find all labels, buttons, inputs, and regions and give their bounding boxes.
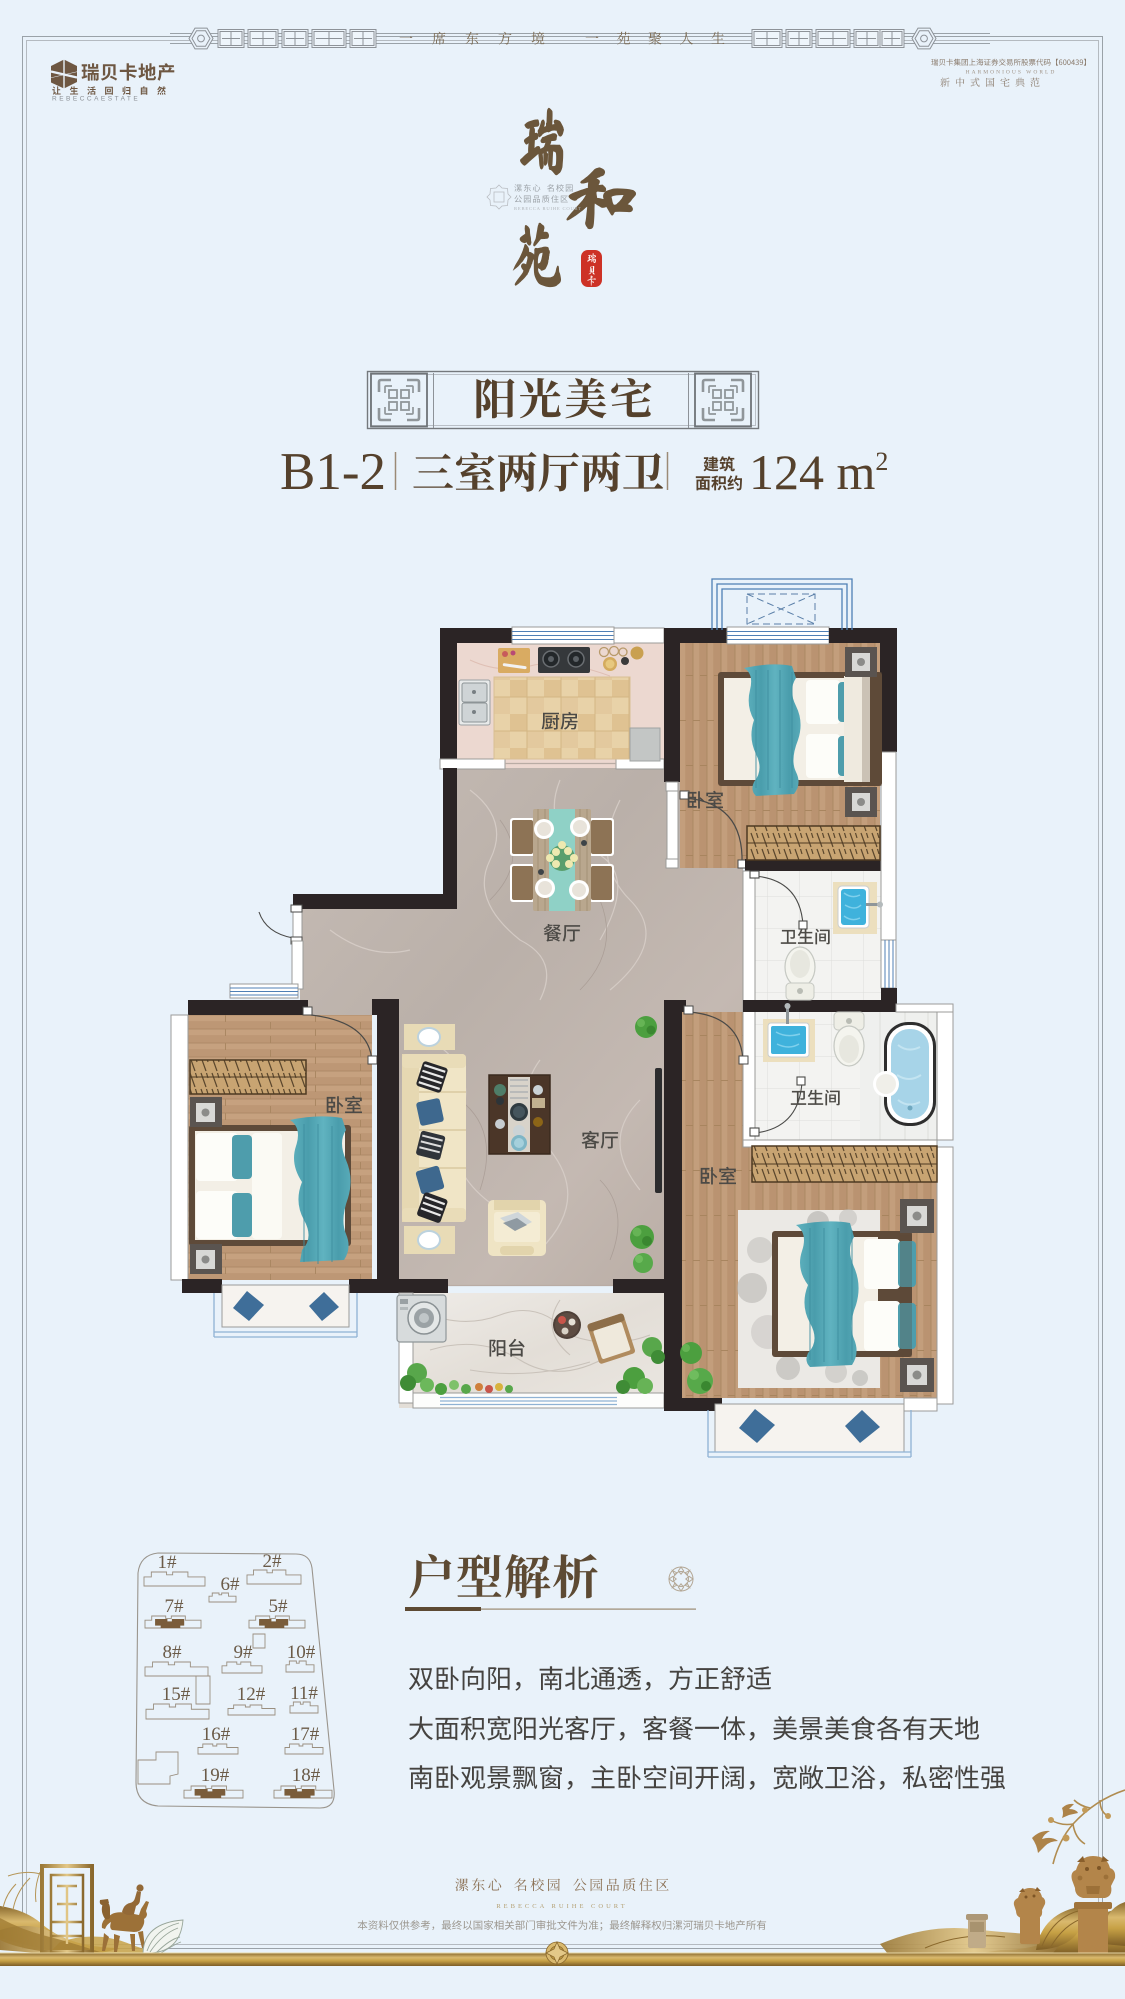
svg-text:16#: 16#	[202, 1724, 231, 1745]
svg-text:15#: 15#	[162, 1684, 191, 1705]
svg-text:HARMONIOUS WORLD: HARMONIOUS WORLD	[966, 70, 1057, 76]
svg-text:19#: 19#	[201, 1765, 230, 1786]
svg-text:10#: 10#	[287, 1642, 316, 1663]
svg-text:9#: 9#	[234, 1642, 254, 1663]
svg-text:8#: 8#	[163, 1642, 183, 1663]
svg-text:17#: 17#	[291, 1724, 320, 1745]
svg-text:12#: 12#	[237, 1684, 266, 1705]
svg-text:REBECCA RUIHE COURT: REBECCA RUIHE COURT	[514, 206, 582, 211]
svg-text:2#: 2#	[263, 1551, 283, 1572]
svg-text:18#: 18#	[292, 1765, 321, 1786]
svg-text:REBECCA RUIHE COURT: REBECCA RUIHE COURT	[496, 1903, 627, 1910]
svg-text:1#: 1#	[158, 1552, 178, 1573]
svg-text:124 m2: 124 m2	[749, 444, 888, 500]
svg-text:B1-2: B1-2	[280, 443, 386, 501]
svg-text:11#: 11#	[290, 1683, 318, 1704]
svg-text:7#: 7#	[165, 1596, 185, 1617]
svg-text:REBECCAESTATE: REBECCAESTATE	[52, 96, 140, 103]
svg-text:5#: 5#	[269, 1596, 289, 1617]
svg-text:6#: 6#	[221, 1574, 241, 1595]
